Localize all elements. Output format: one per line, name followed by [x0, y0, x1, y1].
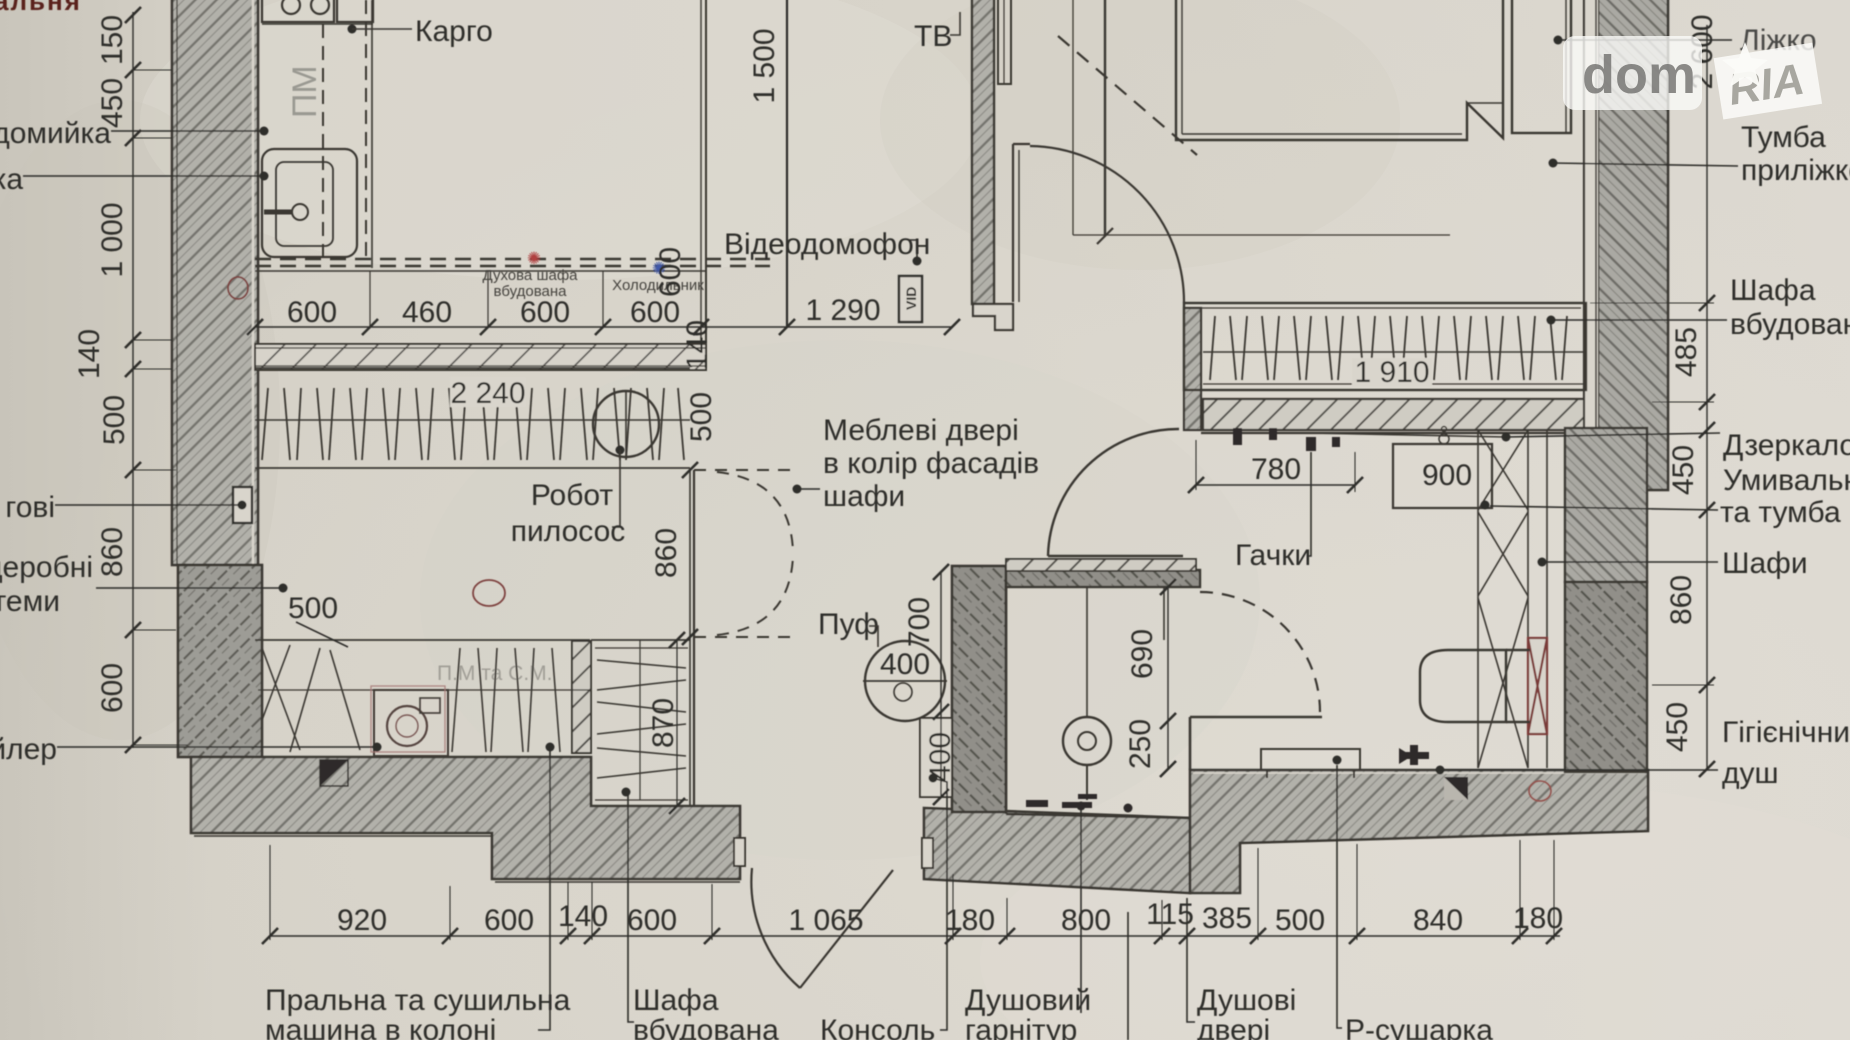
svg-text:теми: теми [0, 585, 60, 618]
svg-text:✺: ✺ [527, 249, 541, 268]
svg-text:Робот: Робот [531, 479, 614, 512]
svg-text:860: 860 [1665, 575, 1698, 625]
svg-text:ПМ: ПМ [286, 65, 324, 118]
svg-text:Відеодомофон: Відеодомофон [724, 228, 930, 261]
svg-text:вбудована: вбудована [1730, 308, 1850, 341]
svg-text:180: 180 [1513, 902, 1563, 935]
svg-text:860: 860 [96, 527, 129, 577]
svg-text:400: 400 [924, 732, 957, 782]
svg-text:840: 840 [1413, 904, 1463, 937]
svg-text:140: 140 [73, 329, 106, 379]
svg-text:385: 385 [1202, 902, 1252, 935]
svg-text:1 500: 1 500 [748, 28, 781, 103]
svg-text:гові: гові [5, 491, 55, 524]
svg-text:600: 600 [96, 663, 129, 713]
svg-text:690: 690 [1126, 629, 1159, 679]
svg-text:Шафа: Шафа [1730, 274, 1816, 307]
svg-text:900: 900 [1422, 459, 1472, 492]
svg-text:1 065: 1 065 [788, 904, 863, 937]
svg-text:600: 600 [520, 296, 570, 329]
svg-text:Пральна та сушильна: Пральна та сушильна [265, 984, 571, 1017]
svg-text:dom: dom [1582, 45, 1696, 105]
svg-text:Духова шафа: Духова шафа [482, 267, 578, 284]
svg-text:140: 140 [558, 900, 608, 933]
svg-text:1 910: 1 910 [1354, 356, 1429, 389]
svg-text:машина в колоні: машина в колоні [265, 1014, 496, 1040]
svg-text:860: 860 [650, 528, 683, 578]
svg-text:180: 180 [945, 904, 995, 937]
svg-text:ка: ка [0, 163, 23, 196]
svg-text:вбудована: вбудована [633, 1014, 779, 1040]
svg-text:450: 450 [1667, 445, 1700, 495]
svg-text:400: 400 [880, 648, 930, 681]
svg-text:700: 700 [903, 597, 936, 647]
svg-text:альня: альня [0, 0, 82, 16]
svg-text:Душові: Душові [1197, 984, 1296, 1017]
svg-text:2 240: 2 240 [450, 377, 525, 410]
svg-text:500: 500 [288, 592, 338, 625]
svg-text:VID: VID [903, 287, 919, 310]
svg-text:в колір фасадів: в колір фасадів [823, 447, 1039, 480]
svg-text:Меблеві двері: Меблеві двері [823, 414, 1019, 447]
svg-text:600: 600 [654, 247, 687, 297]
svg-text:460: 460 [402, 296, 452, 329]
svg-text:шафи: шафи [823, 480, 905, 513]
svg-text:500: 500 [1275, 904, 1325, 937]
svg-text:Р-сушарка: Р-сушарка [1345, 1014, 1493, 1040]
svg-text:приліжкова: приліжкова [1741, 154, 1850, 187]
svg-text:пилосос: пилосос [511, 515, 626, 548]
svg-text:140: 140 [681, 320, 714, 370]
svg-text:1 000: 1 000 [96, 202, 129, 277]
svg-text:Гачки: Гачки [1235, 539, 1311, 572]
svg-text:485: 485 [1670, 327, 1703, 377]
svg-text:Консоль: Консоль [820, 1014, 935, 1040]
svg-text:600: 600 [630, 296, 680, 329]
svg-text:Шафи: Шафи [1722, 547, 1808, 580]
svg-text:500: 500 [98, 395, 131, 445]
svg-text:деробні: деробні [0, 551, 93, 584]
svg-text:600: 600 [627, 904, 677, 937]
svg-text:та тумба: та тумба [1720, 496, 1841, 529]
svg-text:250: 250 [1124, 719, 1157, 769]
svg-text:1 290: 1 290 [805, 294, 880, 327]
svg-text:870: 870 [647, 698, 680, 748]
svg-text:600: 600 [484, 904, 534, 937]
svg-text:двері: двері [1197, 1014, 1270, 1040]
svg-text:150: 150 [96, 15, 129, 65]
svg-text:920: 920 [337, 904, 387, 937]
svg-text:ТВ: ТВ [914, 20, 952, 53]
svg-text:Пуф: Пуф [818, 608, 879, 641]
svg-text:душ: душ [1722, 757, 1779, 790]
svg-text:Шафа: Шафа [633, 984, 719, 1017]
svg-text:Душовий: Душовий [965, 984, 1091, 1017]
svg-text:Дзеркало: Дзеркало [1723, 429, 1850, 462]
svg-text:600: 600 [287, 296, 337, 329]
svg-text:800: 800 [1061, 904, 1111, 937]
svg-text:домийка: домийка [0, 117, 111, 150]
svg-text:Тумба: Тумба [1741, 121, 1826, 154]
svg-text:Карго: Карго [415, 15, 493, 48]
svg-text:780: 780 [1251, 453, 1301, 486]
svg-text:500: 500 [685, 392, 718, 442]
svg-text:Умивальник: Умивальник [1723, 464, 1850, 497]
svg-text:Гігієнічний: Гігієнічний [1722, 716, 1850, 749]
svg-text:гарнітур: гарнітур [965, 1014, 1077, 1040]
svg-text:450: 450 [1661, 702, 1694, 752]
svg-text:йлер: йлер [0, 733, 57, 766]
